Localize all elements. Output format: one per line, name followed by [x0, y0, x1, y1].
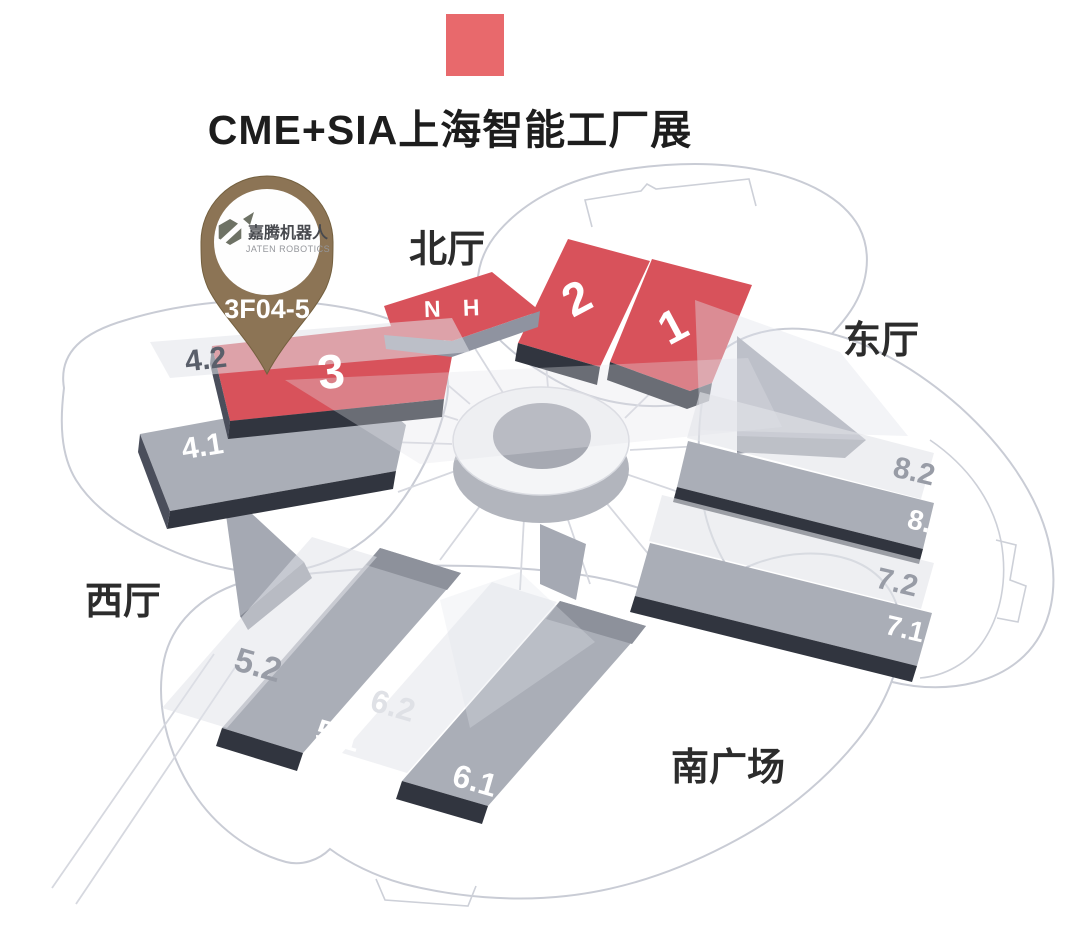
necc-clover-map: 2 1 N H 3 4.2 4.1 8.2 8.1 7.2 7.1 5.2 5.…: [0, 0, 1080, 926]
hall-4-1-label: 4.1: [179, 427, 225, 466]
brand-name-cn: 嘉腾机器人: [247, 223, 329, 242]
south-plaza-label: 南广场: [671, 747, 785, 789]
north-hall-label: 北厅: [409, 229, 485, 271]
brand-name-en: JATEN ROBOTICS: [246, 244, 330, 254]
page-title: CME+SIA上海智能工厂展: [208, 107, 692, 153]
east-hall-label: 东厅: [843, 320, 919, 362]
west-hall-label: 西厅: [85, 581, 161, 623]
booth-number: 3F04-5: [224, 294, 310, 324]
accent-square: [446, 14, 504, 76]
venue-map-infographic: 2 1 N H 3 4.2 4.1 8.2 8.1 7.2 7.1 5.2 5.…: [0, 0, 1080, 926]
header: CME+SIA上海智能工厂展: [208, 14, 692, 153]
hall-nh-label: N H: [423, 294, 487, 322]
hall-4-2-label: 4.2: [183, 341, 228, 379]
